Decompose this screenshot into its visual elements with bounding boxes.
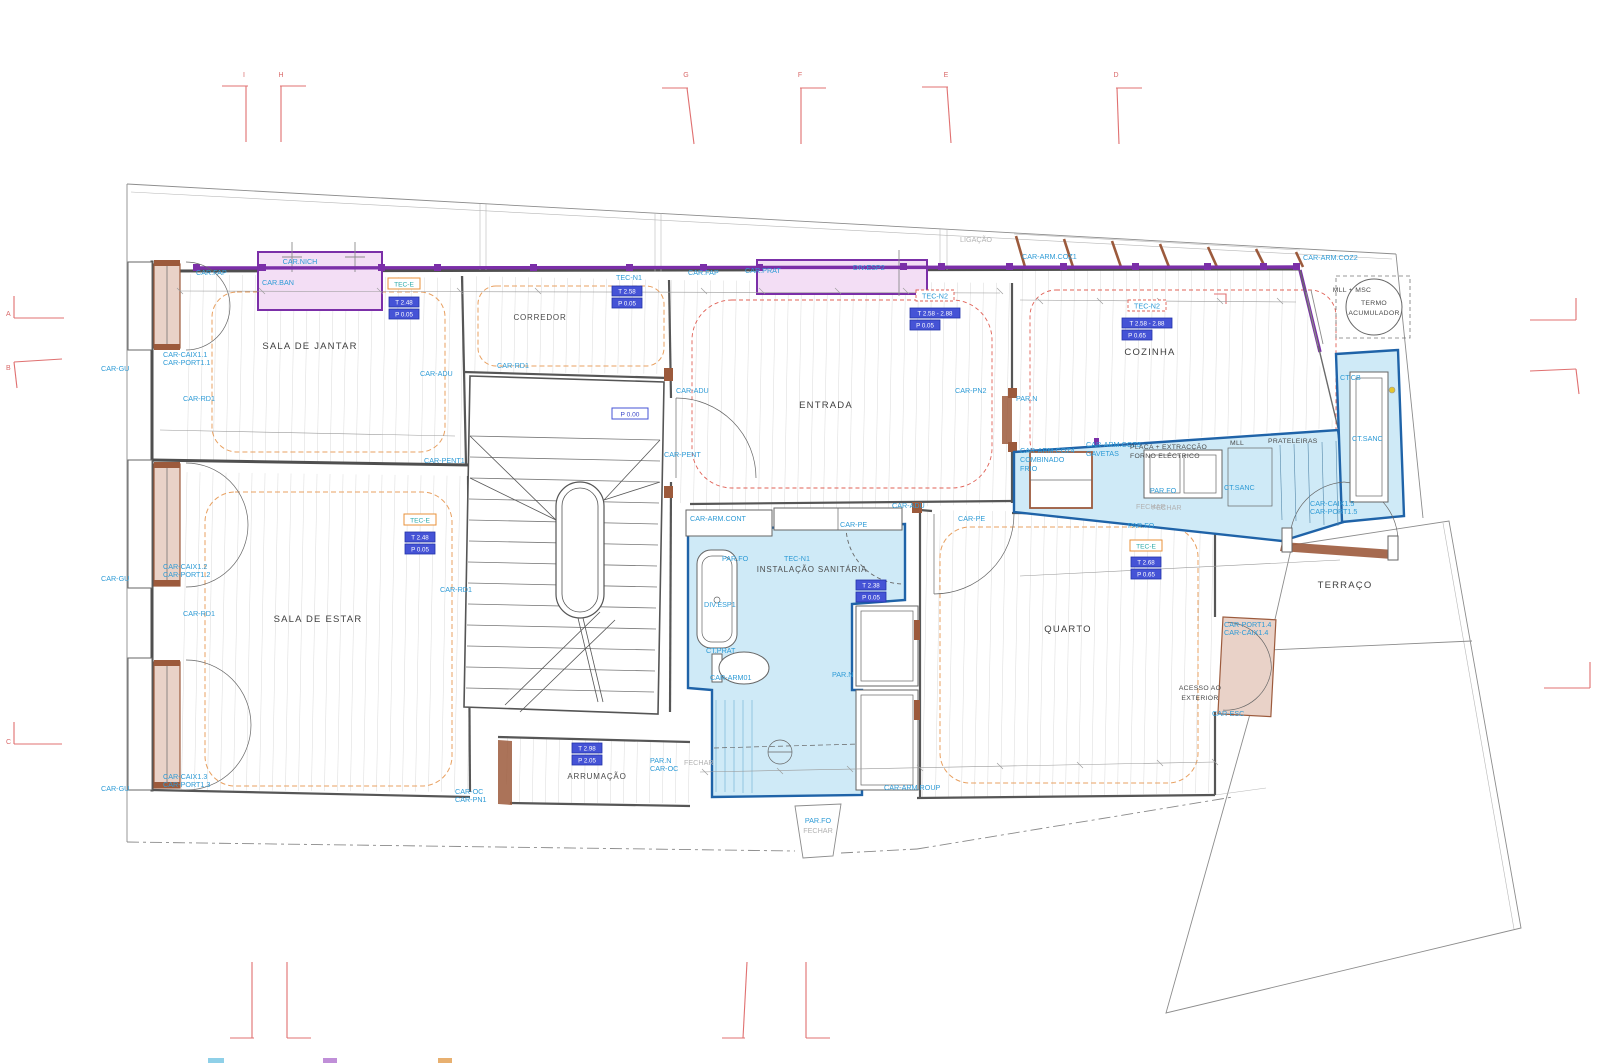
label-par-n-bath: PAR.N xyxy=(832,670,853,679)
svg-text:P 0.05: P 0.05 xyxy=(862,595,880,602)
svg-text:T 2.48: T 2.48 xyxy=(395,300,413,307)
svg-text:D: D xyxy=(1113,72,1118,79)
label-car-arm-roup: CAR-ARM.ROUP xyxy=(884,783,941,792)
svg-text:T 2.48: T 2.48 xyxy=(411,535,429,542)
label-car-nich: CAR.NICH xyxy=(283,257,318,266)
label-caix3-2: CAR-PORT1.3 xyxy=(163,780,210,789)
svg-text:TEC-N2: TEC-N2 xyxy=(922,292,948,301)
label-par-fo-kitchen: PAR.FO xyxy=(1150,486,1177,495)
label-fechar-funnel: FECHAR xyxy=(803,826,833,835)
label-car-rd1-4: CAR-RD1 xyxy=(183,609,215,618)
label-ct-prat: CT.PRAT xyxy=(706,646,736,655)
label-ligacao: LIGAÇÃO xyxy=(960,235,992,244)
label-caix4-2: CAR-CAIX1.4 xyxy=(1224,628,1268,637)
label-placa-2: FORNO ELÉCTRICO xyxy=(1130,451,1200,460)
label-tec-n1-2: TEC-N1 xyxy=(784,554,810,563)
label-car-fap-1: CAR.FAP xyxy=(196,268,227,277)
label-car-gu-1: CAR-GU xyxy=(101,364,129,373)
label-car-rd1-2: CAR-RD1 xyxy=(497,361,529,370)
grid-marker-bottom-1 xyxy=(230,962,254,1038)
label-placa-1: PLACA + EXTRACÇÃO xyxy=(1130,442,1207,451)
svg-text:P 0.65: P 0.65 xyxy=(1137,572,1155,579)
svg-text:G: G xyxy=(683,72,688,79)
svg-text:B: B xyxy=(6,365,11,372)
label-par-fo-quarto: PAR.FO xyxy=(1128,521,1155,530)
grid-marker-top-F: F xyxy=(798,72,826,144)
svg-text:T 2.38: T 2.38 xyxy=(862,583,880,590)
svg-text:P 0.05: P 0.05 xyxy=(916,323,934,330)
room-label-terraco: TERRAÇO xyxy=(1318,580,1373,591)
label-coz4-1: CAR-ARM.COZ4 xyxy=(1020,446,1075,455)
floor-plan-drawing: TERRAÇO xyxy=(0,0,1600,1063)
label-car-adu-1: CAR-ADU xyxy=(420,369,453,378)
label-par-fo-bath: PAR.FO xyxy=(722,554,749,563)
label-termo-1: TERMO xyxy=(1361,300,1387,307)
grid-marker-top-I: I xyxy=(222,72,248,142)
kitchen-clerestory-windows xyxy=(1014,234,1303,267)
label-caix2-2: CAR-PORT1.2 xyxy=(163,570,210,579)
svg-text:I: I xyxy=(243,72,245,79)
label-car-arm01: CAR-ARM01 xyxy=(710,673,752,682)
label-par-fo-funnel: PAR.FO xyxy=(805,816,832,825)
tec-box-jantar: TEC-E T 2.48 P 0.05 xyxy=(388,278,420,319)
grid-marker-right-2 xyxy=(1530,369,1579,394)
svg-text:P 0.05: P 0.05 xyxy=(395,312,413,319)
zero-level-box: P 0.00 xyxy=(612,408,648,419)
svg-text:A: A xyxy=(6,311,11,318)
room-label-sala-de-estar: SALA DE ESTAR xyxy=(274,614,363,625)
svg-text:C: C xyxy=(6,739,11,746)
grid-marker-top-D: D xyxy=(1113,72,1142,144)
svg-text:T 2.68: T 2.68 xyxy=(1137,560,1155,567)
label-caix1-2: CAR-PORT1.1 xyxy=(163,358,210,367)
terrace-area: TERRAÇO xyxy=(1166,521,1521,1013)
label-ct-cb: CT.CB xyxy=(1340,373,1361,382)
label-termo-2: ACUMULADOR xyxy=(1348,310,1399,317)
svg-text:T 2.98: T 2.98 xyxy=(578,746,596,753)
label-car-rd1-1: CAR-RD1 xyxy=(183,394,215,403)
label-car-fap-2: CAR.FAP xyxy=(688,268,719,277)
svg-text:P 2.05: P 2.05 xyxy=(578,758,596,765)
label-mll-msc: MLL + MSC xyxy=(1333,287,1372,294)
label-car-adu-2: CAR-ADU xyxy=(676,386,709,395)
svg-text:TEC-E: TEC-E xyxy=(394,282,414,289)
label-div-esp1: DIV.ESP1 xyxy=(704,600,736,609)
svg-text:P 0.00: P 0.00 xyxy=(621,412,640,419)
svg-text:TEC-E: TEC-E xyxy=(1136,544,1156,551)
svg-text:T 2.58 - 2.88: T 2.58 - 2.88 xyxy=(1130,321,1166,328)
label-prateleiras: PRATELEIRAS xyxy=(1268,438,1318,445)
svg-text:T 2.58: T 2.58 xyxy=(618,289,636,296)
label-caix5-2: CAR-PORT1.5 xyxy=(1310,507,1357,516)
label-car-pn1: CAR-PN1 xyxy=(455,795,487,804)
label-car-pe-1: CAR-PE xyxy=(840,520,867,529)
label-car-gu-3: CAR-GU xyxy=(101,784,129,793)
svg-text:TEC-E: TEC-E xyxy=(410,518,430,525)
svg-text:F: F xyxy=(798,72,802,79)
label-mll: MLL xyxy=(1230,440,1244,447)
room-label-entrada: ENTRADA xyxy=(799,400,853,411)
room-label-arrumacao: ARRUMAÇÃO xyxy=(567,772,626,781)
grid-marker-top-G: G xyxy=(662,72,694,144)
label-car-gu-2: CAR-GU xyxy=(101,574,129,583)
label-div-esp2: DIV.ESP2 xyxy=(853,263,885,272)
label-fechar-quarto: FECHAR xyxy=(1136,502,1166,511)
svg-text:H: H xyxy=(278,72,283,79)
label-car-ban: CAR.BAN xyxy=(262,278,294,287)
label-car-oc-arr: CAR-OC xyxy=(650,764,678,773)
label-par-n-1: PAR.N xyxy=(1016,394,1037,403)
grid-marker-bottom-2 xyxy=(287,962,311,1038)
room-label-sala-de-jantar: SALA DE JANTAR xyxy=(262,341,357,352)
grid-marker-left-B: B xyxy=(6,359,62,388)
label-car-prat: CAR.PRAT xyxy=(745,266,781,275)
label-car-pe-2: CAR-PE xyxy=(958,514,985,523)
label-car-pn2: CAR-PN2 xyxy=(955,386,987,395)
label-car-adu-3: CAR-ADU xyxy=(892,501,925,510)
stairs xyxy=(464,376,664,714)
grid-marker-bottom-3 xyxy=(722,962,747,1038)
legend-stubs xyxy=(208,1058,452,1063)
svg-text:TEC-N2: TEC-N2 xyxy=(1134,302,1160,311)
grid-marker-left-A: A xyxy=(6,296,64,318)
room-label-cozinha: COZINHA xyxy=(1124,347,1175,358)
svg-text:T 2.58 - 2.88: T 2.58 - 2.88 xyxy=(918,311,954,318)
label-coz1: CAR-ARM.COZ1 xyxy=(1022,252,1077,261)
grid-marker-right-3 xyxy=(1544,662,1590,688)
label-ct-sanc-1: CT.SANC xyxy=(1352,434,1383,443)
label-coz4-3: FRIO xyxy=(1020,464,1038,473)
label-car-rd1-3: CAR-RD1 xyxy=(440,585,472,594)
label-tec-n1-1: TEC-N1 xyxy=(616,273,642,282)
grid-marker-bottom-4 xyxy=(806,962,830,1038)
label-coz3-2: GAVETAS xyxy=(1086,449,1119,458)
label-car-arm-cont: CAR-ARM.CONT xyxy=(690,514,747,523)
grid-marker-left-C: C xyxy=(6,722,62,746)
wardrobes xyxy=(856,606,920,790)
label-car-pent1: CAR-PENT1 xyxy=(424,456,465,465)
label-ct-sanc-2: CT.SANC xyxy=(1224,483,1255,492)
svg-text:E: E xyxy=(944,72,949,79)
room-label-acesso-line2: EXTERIOR xyxy=(1181,695,1218,702)
grid-marker-top-H: H xyxy=(278,72,306,142)
floor-plan-page: TERRAÇO xyxy=(0,0,1600,1063)
room-label-instalacao-sanitaria: INSTALAÇÃO SANITÁRIA xyxy=(757,565,868,574)
svg-text:P 0.05: P 0.05 xyxy=(618,301,636,308)
grid-marker-top-E: E xyxy=(922,72,951,143)
label-car-esc: CAR-ESC xyxy=(1212,709,1244,718)
tec-box-quarto: TEC-E T 2.68 P 0.65 xyxy=(1130,540,1162,579)
room-label-quarto: QUARTO xyxy=(1044,624,1092,635)
label-coz2: CAR-ARM.COZ2 xyxy=(1303,253,1358,262)
svg-text:P 0.05: P 0.05 xyxy=(411,547,429,554)
label-coz4-2: COMBINADO xyxy=(1020,455,1065,464)
tec-box-estar: TEC-E T 2.48 P 0.05 xyxy=(404,514,436,554)
grid-marker-right-1 xyxy=(1530,298,1576,320)
label-fechar-arr: FECHAR xyxy=(684,758,714,767)
svg-text:P 0.65: P 0.65 xyxy=(1128,333,1146,340)
room-label-acesso-line1: ACESSO AO xyxy=(1179,685,1221,692)
room-label-corredor: CORREDOR xyxy=(513,313,566,322)
label-car-pent: CAR-PENT xyxy=(664,450,701,459)
